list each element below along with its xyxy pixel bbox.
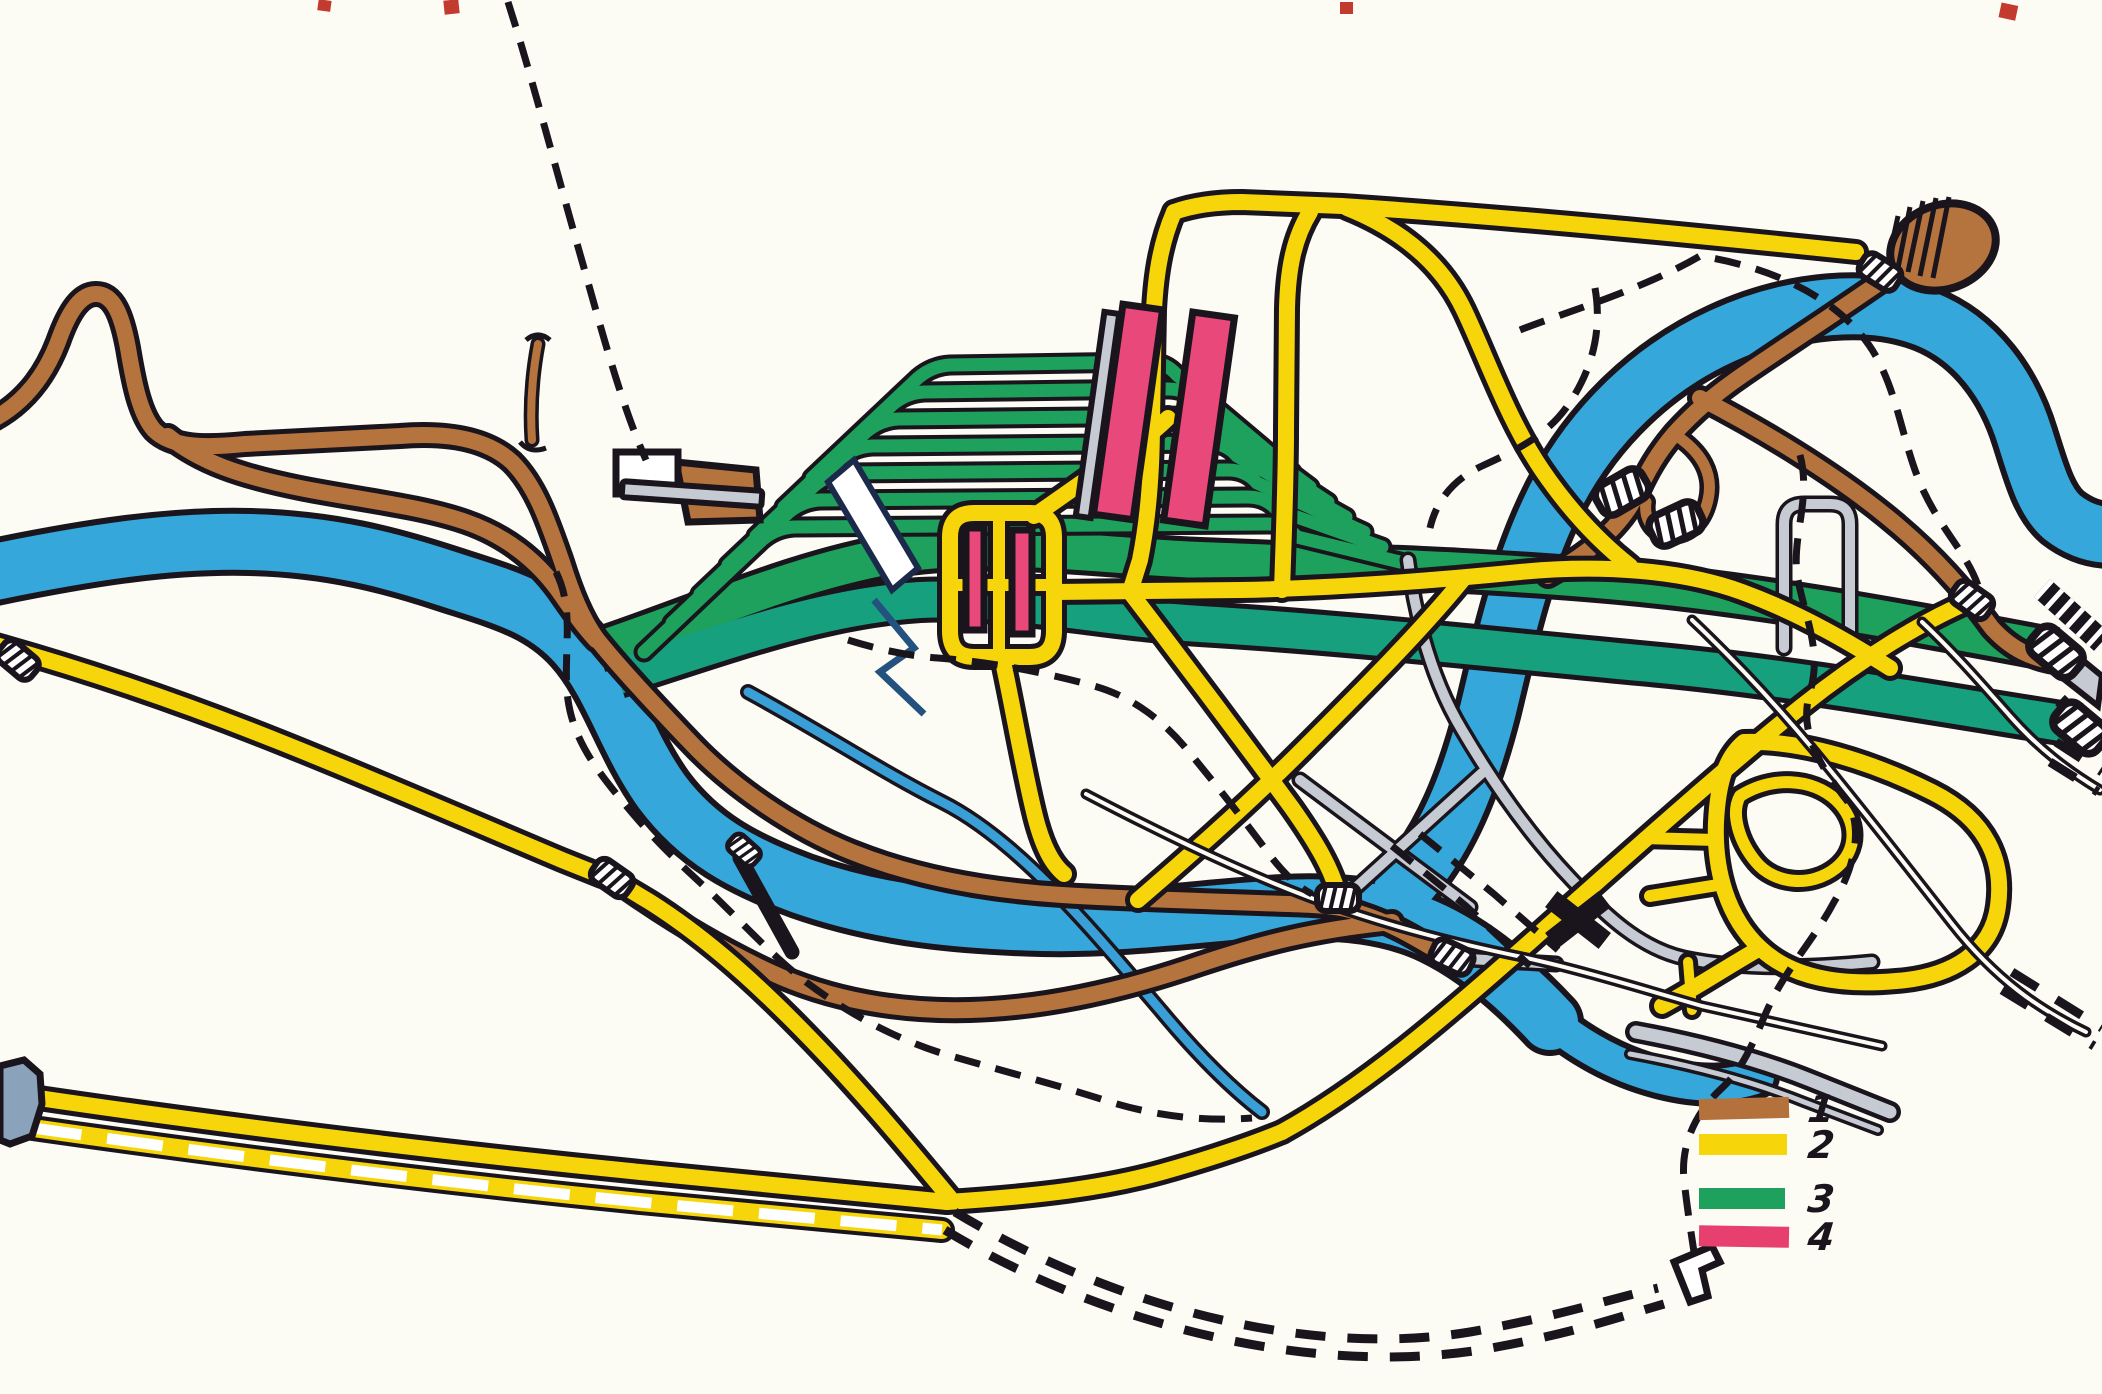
page-edge-marks [317,0,2018,21]
legend-label-4: 4 [1806,1218,1836,1256]
legend-swatch-4-icon [1698,1224,1792,1250]
legend-label-2: 2 [1806,1126,1836,1164]
map-canvas: 1 2 3 4 [0,0,2102,1394]
legend-item-3: 3 [1698,1180,1834,1218]
dashed-line-terminal-structure [616,452,762,522]
legend-label-3: 3 [1806,1180,1836,1218]
legend-swatch-3-icon [1698,1186,1792,1212]
legend-item-2: 2 [1698,1126,1834,1164]
legend-swatch-1-icon [1698,1096,1792,1122]
legend-item-4: 4 [1698,1218,1834,1256]
canal-head-blob [0,1060,42,1144]
legend-swatch-2-icon [1698,1132,1792,1158]
